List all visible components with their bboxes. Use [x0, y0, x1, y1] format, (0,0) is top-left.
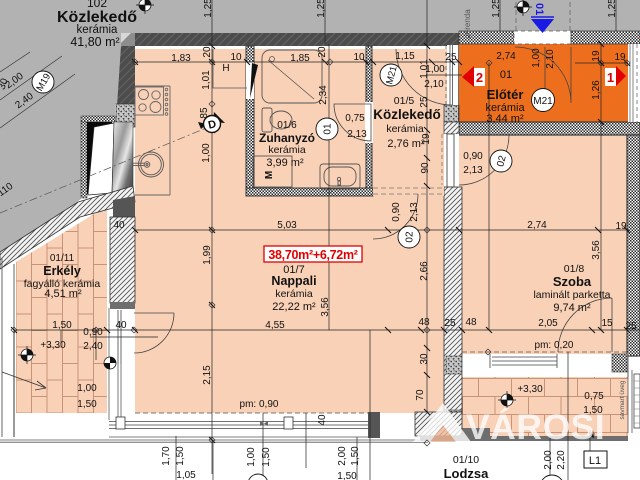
svg-text:2,20: 2,20 — [556, 450, 567, 470]
svg-text:1,83: 1,83 — [171, 53, 191, 64]
svg-text:20: 20 — [202, 46, 213, 58]
svg-text:0,90: 0,90 — [391, 202, 402, 222]
svg-text:1,25: 1,25 — [203, 0, 214, 18]
svg-text:1,26: 1,26 — [591, 80, 602, 100]
svg-text:1,50: 1,50 — [52, 320, 72, 331]
svg-text:5,03: 5,03 — [277, 220, 297, 231]
svg-text:3,56: 3,56 — [320, 297, 331, 317]
svg-text:Erkély: Erkély — [43, 264, 81, 278]
svg-text:Szoba: Szoba — [553, 274, 592, 289]
svg-text:30: 30 — [419, 353, 430, 365]
svg-text:2,74: 2,74 — [527, 220, 547, 231]
svg-text:90: 90 — [420, 162, 431, 174]
svg-text:1: 1 — [607, 70, 614, 85]
svg-text:3,44 m²: 3,44 m² — [486, 113, 524, 125]
svg-text:10: 10 — [353, 52, 365, 63]
svg-text:1,00: 1,00 — [246, 447, 257, 467]
svg-text:1,00: 1,00 — [201, 143, 212, 163]
svg-text:1,05: 1,05 — [176, 470, 196, 480]
svg-text:1,70: 1,70 — [161, 446, 172, 466]
svg-text:3,56: 3,56 — [591, 240, 602, 260]
svg-text:15: 15 — [601, 318, 613, 329]
svg-text:Zuhanyzó: Zuhanyzó — [259, 131, 315, 145]
svg-text:2,00: 2,00 — [337, 446, 348, 466]
svg-text:1,25: 1,25 — [491, 0, 502, 18]
svg-text:1,01: 1,01 — [201, 70, 212, 90]
svg-text:25: 25 — [625, 321, 637, 332]
svg-text:02: 02 — [405, 231, 416, 243]
svg-text:3,99 m²: 3,99 m² — [266, 157, 304, 169]
svg-text:22,22 m²: 22,22 m² — [272, 301, 316, 313]
svg-text:70: 70 — [415, 389, 426, 401]
svg-text:4,55: 4,55 — [265, 320, 285, 331]
svg-text:19: 19 — [591, 50, 602, 62]
svg-text:2,74: 2,74 — [496, 51, 516, 62]
svg-text:+3,30: +3,30 — [40, 340, 66, 351]
svg-text:0,75: 0,75 — [584, 391, 604, 402]
svg-text:01/5: 01/5 — [394, 95, 415, 107]
svg-text:2,13: 2,13 — [463, 165, 483, 176]
svg-text:2,00: 2,00 — [543, 450, 554, 470]
svg-text:20: 20 — [317, 46, 328, 58]
svg-text:2,34: 2,34 — [318, 85, 329, 105]
svg-text:1,15: 1,15 — [395, 51, 415, 62]
svg-text:gerenda: gerenda — [463, 9, 472, 39]
svg-text:M: M — [264, 171, 275, 179]
svg-text:kerámia: kerámia — [268, 144, 306, 156]
svg-text:kerámia: kerámia — [386, 123, 424, 135]
svg-text:2,15: 2,15 — [202, 365, 213, 385]
svg-text:2: 2 — [476, 70, 483, 85]
svg-text:1,50: 1,50 — [175, 446, 186, 466]
svg-text:41,80 m²: 41,80 m² — [70, 35, 119, 49]
svg-text:1,01: 1,01 — [419, 59, 430, 79]
svg-text:40: 40 — [317, 414, 328, 426]
svg-text:1,25: 1,25 — [607, 0, 618, 18]
svg-text:savmart üveg: savmart üveg — [619, 380, 626, 419]
svg-text:01/11: 01/11 — [50, 253, 75, 264]
svg-text:40: 40 — [115, 320, 127, 331]
svg-text:10: 10 — [230, 52, 242, 63]
svg-text:0,75: 0,75 — [345, 113, 365, 124]
svg-text:pm: 0,20: pm: 0,20 — [535, 340, 574, 351]
svg-text:1,99: 1,99 — [202, 245, 213, 265]
svg-text:1,85: 1,85 — [290, 53, 310, 64]
svg-text:25: 25 — [419, 96, 430, 108]
svg-text:40: 40 — [113, 220, 125, 231]
svg-text:01/10: 01/10 — [453, 454, 479, 466]
svg-text:2,66: 2,66 — [419, 261, 430, 281]
svg-text:0,90: 0,90 — [463, 151, 483, 162]
svg-text:L1: L1 — [589, 455, 601, 467]
svg-text:2,10: 2,10 — [424, 79, 444, 90]
svg-text:1,50: 1,50 — [77, 399, 97, 410]
svg-text:kerámia: kerámia — [275, 288, 313, 300]
svg-text:38,70m²+6,72m²: 38,70m²+6,72m² — [268, 248, 357, 262]
svg-text:25: 25 — [444, 318, 456, 329]
svg-text:H: H — [222, 63, 229, 74]
svg-text:01: 01 — [323, 123, 334, 135]
svg-text:01: 01 — [500, 69, 512, 81]
svg-text:pm: 0,90: pm: 0,90 — [240, 399, 279, 410]
svg-text:1,50: 1,50 — [337, 471, 357, 480]
svg-text:2,05: 2,05 — [538, 318, 558, 329]
svg-text:laminált parketta: laminált parketta — [533, 289, 610, 301]
svg-text:Közlekedő: Közlekedő — [373, 107, 441, 122]
svg-text:25: 25 — [445, 52, 457, 63]
svg-text:01/6: 01/6 — [277, 120, 297, 131]
svg-text:M21: M21 — [533, 96, 553, 107]
svg-text:+3,30: +3,30 — [517, 384, 543, 395]
svg-text:Nappali: Nappali — [271, 274, 316, 288]
svg-text:2,40: 2,40 — [83, 341, 103, 352]
svg-text:2,13: 2,13 — [409, 202, 420, 222]
svg-text:19: 19 — [614, 52, 626, 63]
svg-text:01: 01 — [533, 3, 545, 15]
svg-text:Előtér: Előtér — [487, 87, 524, 102]
svg-text:2,76 m²: 2,76 m² — [387, 138, 425, 150]
svg-text:9,74 m²: 9,74 m² — [553, 302, 591, 314]
svg-text:2,13: 2,13 — [347, 129, 367, 140]
svg-text:4,51 m²: 4,51 m² — [44, 288, 82, 300]
svg-text:1,00: 1,00 — [77, 383, 97, 394]
svg-text:48: 48 — [465, 317, 477, 328]
svg-text:1,50: 1,50 — [350, 446, 361, 466]
svg-text:1,25: 1,25 — [316, 0, 327, 18]
svg-text:1,00: 1,00 — [531, 48, 542, 68]
svg-text:VÁROSI: VÁROSI — [466, 407, 605, 447]
svg-text:0,90: 0,90 — [83, 327, 103, 338]
svg-text:2,10: 2,10 — [545, 49, 556, 69]
svg-text:Lodzsa: Lodzsa — [444, 466, 490, 480]
svg-text:19: 19 — [615, 221, 627, 232]
svg-text:1,50: 1,50 — [261, 447, 272, 467]
svg-text:48: 48 — [418, 317, 430, 328]
